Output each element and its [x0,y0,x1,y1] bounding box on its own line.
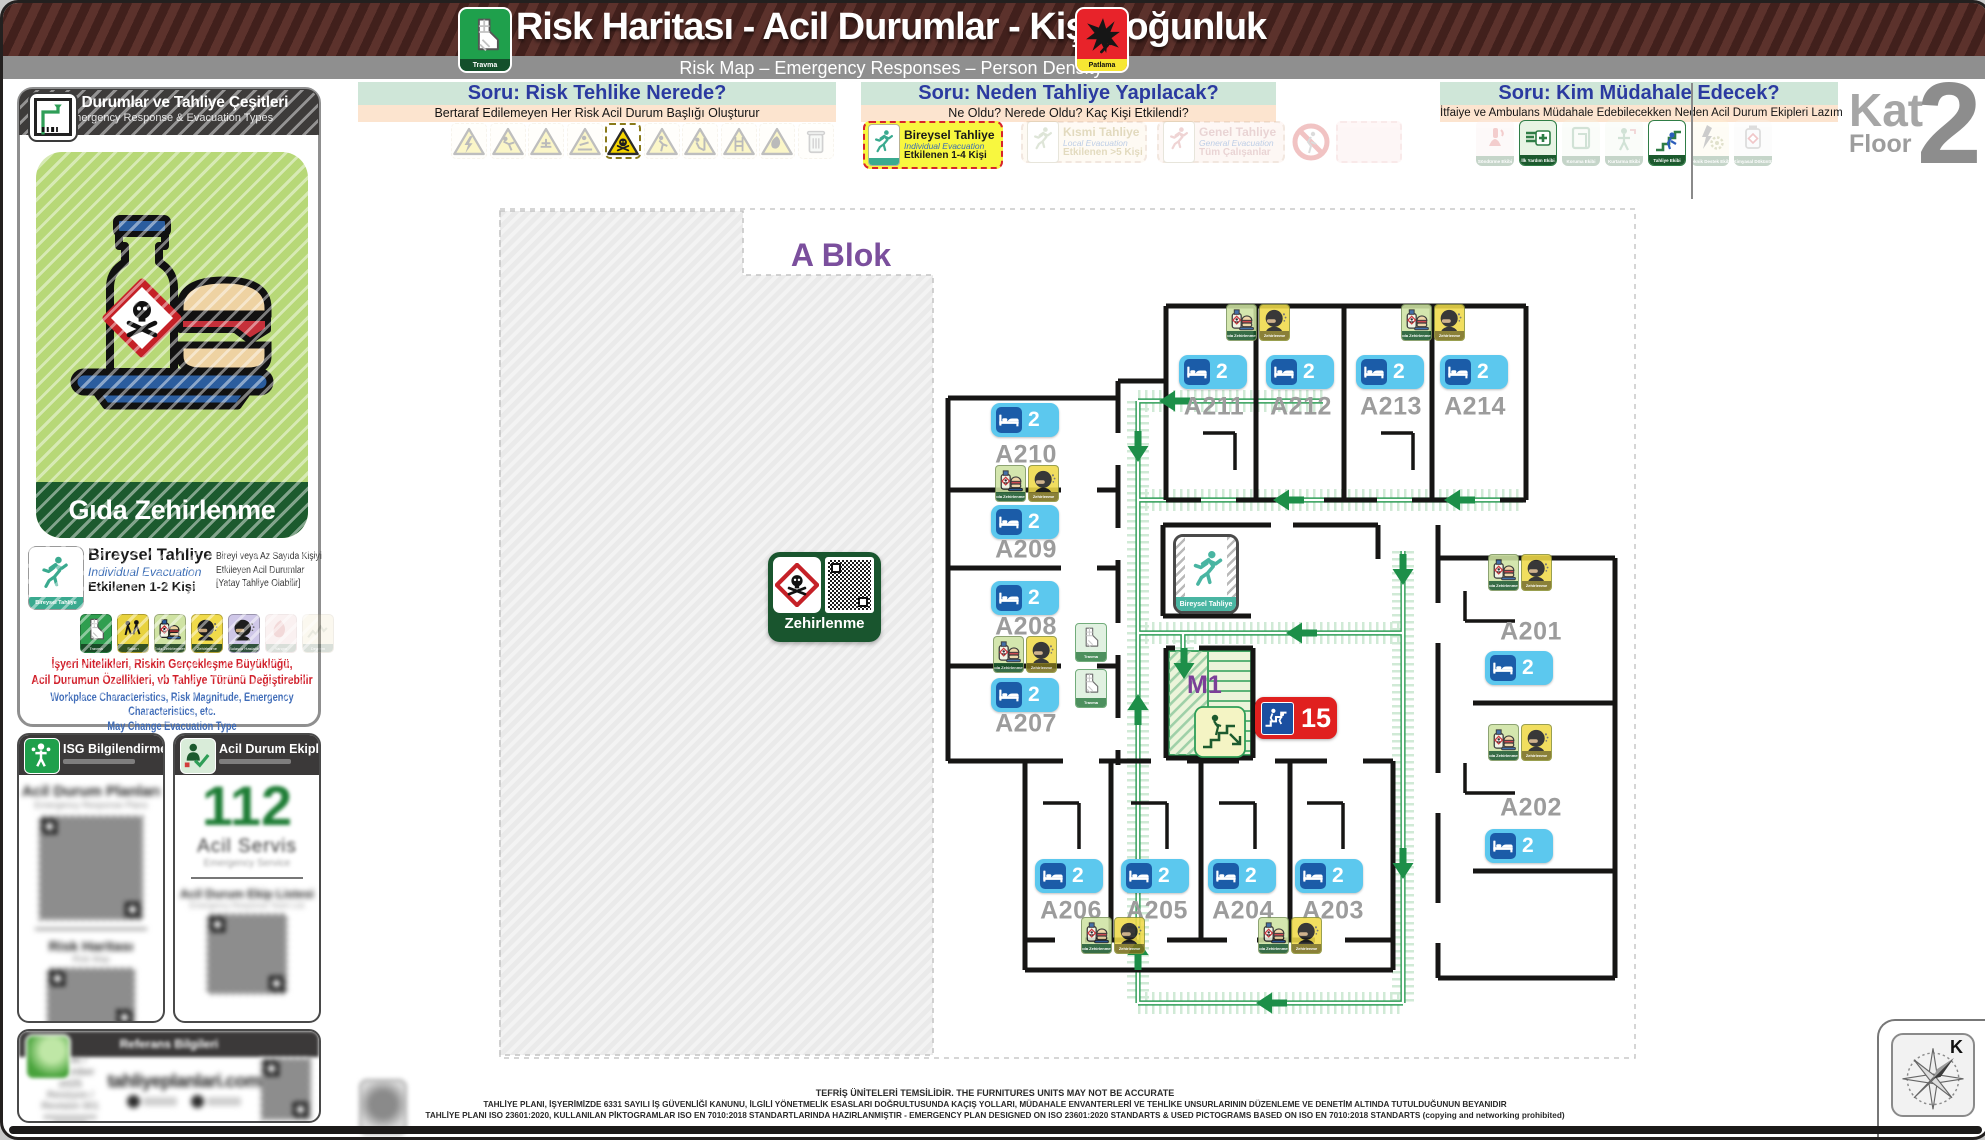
team-list-qr [207,914,287,994]
route-arrow-left [1256,993,1287,1014]
isg-panel-body: Acil Durum Planları Emergency Response P… [19,775,163,1021]
bed-icon [996,682,1022,708]
evacuation-warning-icon [644,123,680,159]
team-label: Teknik Destek Ekibi [1691,156,1729,166]
food-poisoning-illustration [52,166,292,416]
bed-count-badge: 2 [1356,355,1424,389]
emergency-type-icon-strip: Travma Saldırı Gıda Zehirlenmesi Zehirle… [80,614,334,653]
q3-team-icons: Söndürme Ekibi İlk Yardım Ekibi Koruma E… [1476,120,1772,166]
bed-count-badge: 2 [991,403,1059,437]
food-poisoning-icon: Gıda Zehirlenmesi [1226,304,1257,341]
bed-icon [1271,359,1297,385]
sign-label: Bireysel Tahliye [29,597,83,609]
bed-icon [1490,655,1516,681]
option-title: Genel Tahliye [1199,126,1276,139]
slip-warning-icon [567,123,603,159]
bed-count-badge: 2 [1179,355,1247,389]
q2-title: Soru: Neden Tahliye Yapılacak? [861,82,1276,105]
food-poisoning-icon: Gıda Zehirlenmesi [993,636,1024,673]
poisoning-mini-icon: Zehirlenme [191,614,223,653]
risk-illustration-card: Gıda Zehirlenme [36,152,308,538]
bed-count-badge: 2 [991,678,1059,712]
bed-icon [996,585,1022,611]
bed-count-badge: 2 [1485,651,1553,685]
bed-icon [1445,359,1471,385]
bed-icon [996,509,1022,535]
electric-warning-icon [451,123,487,159]
food-poisoning-icon: Gıda Zehirlenmesi [1081,917,1112,954]
room-label: A202 [1500,794,1562,823]
explosion-icon: Patlama [1075,7,1129,73]
note-english: Workplace Characteristics, Risk Magnitud… [28,691,316,734]
q2-subtitle: Ne Oldu? Nerede Oldu? Kaç Kişi Etkilendi… [861,105,1276,122]
bed-icon [1490,833,1516,859]
technical-team-icon: Teknik Destek Ekibi [1691,120,1729,166]
ladder-warning-icon [721,123,757,159]
hazard-icon-pair: Gıda Zehirlenmesi Zehirlenme [1488,554,1552,591]
team-label: Tahliye Ekibi [1649,155,1685,165]
bed-count-badge: 2 [1208,859,1276,893]
team-list-label: Acil Durum Ekip Listesi [175,887,319,901]
hazard-icon-pair: Gıda Zehirlenmesi Zehirlenme [1226,304,1290,341]
no-evacuation-icon [1291,122,1331,162]
option-detail: Etkilenen >5 Kişi [1063,148,1143,159]
hazard-icon-pair: Gıda Zehirlenmesi Zehirlenme [1401,304,1465,341]
emergency-plans-label: Acil Durum Planları [19,783,163,800]
q3-title: Soru: Kim Müdahale Edecek? [1440,82,1838,105]
bed-icon [1126,863,1152,889]
toxic-warning-icon [605,123,641,159]
food-poisoning-icon: Gıda Zehirlenmesi [1258,917,1289,954]
evacuation-team-icon: Tahliye Ekibi [1648,120,1686,166]
q1-warning-icons [451,123,834,159]
food-poisoning-icon: Gıda Zehirlenmesi [1488,724,1519,761]
ghs-toxic-icon [773,557,821,613]
poisoning-icon: Zehirlenme [1291,917,1322,954]
question-why-evacuate: Soru: Neden Tahliye Yapılacak? Ne Oldu? … [861,82,1276,122]
risk-title: Gıda Zehirlenme [36,482,308,538]
flammable-warning-icon [759,123,795,159]
team-panel-body: 112 Acil Servis Emergency Service Acil D… [175,775,319,1021]
floor-label-en: Floor [1849,133,1923,157]
bed-icon [1361,359,1387,385]
room-label: A211 [1184,393,1244,422]
option-no-evacuation [1291,121,1407,163]
poisoning-icon: Zehirlenme [1434,304,1465,341]
floor-label-tr: Kat [1849,89,1923,133]
isg-panel-title: ISG Bilgilendirme [63,742,165,756]
q2-evacuation-options: Bireysel Tahliye Individual Evacuation E… [863,121,1407,169]
bed-count-badge: 2 [991,581,1059,615]
attack-mini-icon: Saldırı [117,614,149,653]
bed-icon [1213,863,1239,889]
individual-evacuation-sign: Bireysel Tahliye [28,546,84,610]
q1-subtitle: Bertaraf Edilemeyen Her Risk Acil Durum … [358,105,836,122]
waste-warning-icon [798,123,834,159]
evacuation-type-block: Bireysel Tahliye Individual Evacuation E… [88,546,220,594]
stairwell-label: M1 [1187,671,1222,700]
bed-icon [1184,359,1210,385]
fall-warning-icon [490,123,526,159]
sidebar-panel: Acil Durumlar ve Tahliye Çeşitleri Emerg… [17,87,321,727]
bed-count-badge: 2 [1440,355,1508,389]
question-who-responds: Soru: Kim Müdahale Edecek? İtfaiye ve Am… [1440,82,1838,122]
emergency-number: 112 [175,777,319,836]
emergency-team-panel: Acil Durum Ekipleri 112 Acil Servis Emer… [173,733,321,1023]
food-poisoning-mini-icon: Gıda Zehirlenmesi [154,614,186,653]
team-panel-title: Acil Durum Ekipleri [219,742,321,756]
page-subtitle: Risk Map – Emergency Responses – Person … [679,58,1102,79]
protection-team-icon: Koruma Ekibi [1562,120,1600,166]
risk-map-poster: Travma Risk Haritası - Acil Durumlar - K… [0,0,1985,1140]
evac-type-title: Bireysel Tahliye [88,546,220,565]
titleblock-divider [1691,83,1693,199]
poisoning-icon: Zehirlenme [1114,917,1145,954]
reference-qr [261,1058,311,1120]
poisoning-icon: Zehirlenme [1028,465,1059,502]
emergency-plans-qr [39,816,143,920]
room-label: A201 [1500,618,1562,647]
team-label: Kimyasal Döküntü [1734,156,1772,166]
hazard-icon-pair: Gıda Zehirlenmesi Zehirlenme [1081,917,1145,954]
risk-map-label: Risk Haritası [19,938,163,954]
hazard-icon-pair: Gıda Zehirlenmesi Zehirlenme [1488,724,1552,761]
option-detail: Etkilenen 1-4 Kişi [904,151,995,162]
isg-panel-header: ISG Bilgilendirme [19,735,163,775]
team-panel-icon [180,738,216,774]
first-aid-team-icon: İlk Yardım Ekibi [1519,120,1557,166]
bed-icon [1040,863,1066,889]
bed-count-badge: 2 [1266,355,1334,389]
hazard-qr [825,557,874,613]
room-label: A207 [995,710,1057,739]
capacity-count: 15 [1301,703,1331,734]
local-evacuation-icon [1027,121,1059,163]
no-evacuation-box [1336,121,1402,163]
trauma-icon-label: Travma [460,59,510,71]
option-detail: Tüm Çalışanlar [1199,148,1276,159]
food-poisoning-icon: Gıda Zehirlenmesi [1488,554,1519,591]
chemical-spill-team-icon: Kimyasal Döküntü [1734,120,1772,166]
poisoning-icon: Zehirlenme [1026,636,1057,673]
bed-count-badge: 2 [1035,859,1103,893]
website: tahliyeplanlari.com [107,1071,261,1092]
stairs-people-icon [1261,702,1294,735]
floorplan-icon [28,92,78,142]
hand-injury-warning-icon [528,123,564,159]
room-label: A214 [1444,393,1506,422]
hazard-icon-pair: Gıda Zehirlenmesi Zehirlenme [995,465,1059,502]
isg-info-panel: ISG Bilgilendirme Acil Durum Planları Em… [17,733,165,1023]
option-local-evacuation: Kısmi Tahliye Local Evacuation Etkilenen… [1021,121,1147,163]
isg-panel-icon [24,738,60,774]
q1-title: Soru: Risk Tehlike Nerede? [358,82,836,105]
bed-count-badge: 2 [991,505,1059,539]
option-title: Bireysel Tahliye [904,129,995,142]
question-risk-where: Soru: Risk Tehlike Nerede? Bertaraf Edil… [358,82,836,122]
hazard-icon-pair: Gıda Zehirlenmesi Zehirlenme [1258,917,1322,954]
earthquake-mini-icon: Deprem [302,614,334,653]
trauma-mini-icon: Travma [80,614,112,653]
route-arrow-left [1286,623,1317,644]
risk-map-qr [47,968,135,1023]
option-title: Kısmi Tahliye [1063,126,1143,139]
bed-count-badge: 2 [1295,859,1363,893]
phone-icon [25,1034,71,1080]
page-title: Risk Haritası - Acil Durumlar - Kişi Yoğ… [516,6,1266,49]
option-individual-evacuation: Bireysel Tahliye Individual Evacuation E… [863,121,1003,169]
team-label: İlk Yardım Ekibi [1520,155,1556,165]
trauma-icon: Travma [1075,623,1107,662]
trauma-icon: Travma [458,7,512,73]
individual-evacuation-plan-sign: Bireysel Tahliye [1173,534,1239,614]
bed-count-badge: 2 [1121,859,1189,893]
poisoning-icon: Zehirlenme [1521,724,1552,761]
team-panel-header: Acil Durum Ekipleri [175,735,319,775]
explosion-icon-label: Patlama [1077,59,1127,71]
room-label: A209 [995,536,1057,565]
room-label: A213 [1360,393,1422,422]
floor-indicator: Kat Floor [1849,89,1923,156]
fire-mini-icon: Yangın [265,614,297,653]
route-arrow-up [1128,694,1149,725]
evac-type-subtitle: Individual Evacuation [88,565,220,579]
revision-number: Revizyon / Revision 001 [33,1090,107,1112]
note-turkish: İşyeri Nitelikleri, Riskin Gerçekleşme B… [28,656,316,687]
poisoning-icon: Zehirlenme [1521,554,1552,591]
infectious-disease-mini-icon: Bulaşıcı Hastalık [228,614,260,653]
header: Travma Risk Haritası - Acil Durumlar - K… [3,3,1985,79]
stairwell-capacity-badge: 15 [1255,697,1337,739]
bed-icon [996,407,1022,433]
team-label: Söndürme Ekibi [1476,156,1514,166]
footer-fine-print: TEFRİŞ ÜNİTELERİ TEMSİLİDİR. THE FURNITU… [415,1087,1575,1121]
iso-badges [107,1095,261,1108]
hazard-label: Zehirlenme [773,615,876,632]
bed-icon [1300,863,1326,889]
bed-count-badge: 2 [1485,829,1553,863]
rescue-team-icon: Kurtarma Ekibi [1605,120,1643,166]
route-arrow-left [1444,490,1475,511]
reference-panel: Referans Bilgileri Aralık / December 202… [17,1029,321,1123]
poisoning-icon: Zehirlenme [1259,304,1290,341]
bottom-frame-bar [9,1126,1982,1134]
food-poisoning-icon: Gıda Zehirlenmesi [1401,304,1432,341]
obstacle-warning-icon [682,123,718,159]
poisoning-hazard-badge: Zehirlenme [768,552,881,642]
north-label: K [1950,1037,1963,1058]
trauma-icon: Travma [1075,669,1107,708]
compass: K [1891,1033,1975,1117]
hazard-icon-pair: Gıda Zehirlenmesi Zehirlenme [993,636,1057,673]
floor-number: 2 [1917,65,1982,181]
general-evacuation-icon [1163,121,1195,163]
option-general-evacuation: Genel Tahliye General Evacuation Tüm Çal… [1157,121,1285,163]
stairs-down-icon [1195,707,1245,757]
emergency-service-label: Acil Servis [175,836,319,858]
food-poisoning-icon: Gıda Zehirlenmesi [995,465,1026,502]
fire-team-icon: Söndürme Ekibi [1476,120,1514,166]
individual-evacuation-icon [868,124,900,166]
room-label: A212 [1270,393,1332,422]
evacuation-type-description: Bireyi veya Az Sayıda Kişiyi Etkileyen A… [216,550,323,591]
evac-type-affected: Etkilenen 1-2 Kişi [88,579,220,594]
team-label: Kurtarma Ekibi [1605,156,1643,166]
team-label: Koruma Ekibi [1562,156,1600,166]
block-label: A Blok [775,237,907,274]
